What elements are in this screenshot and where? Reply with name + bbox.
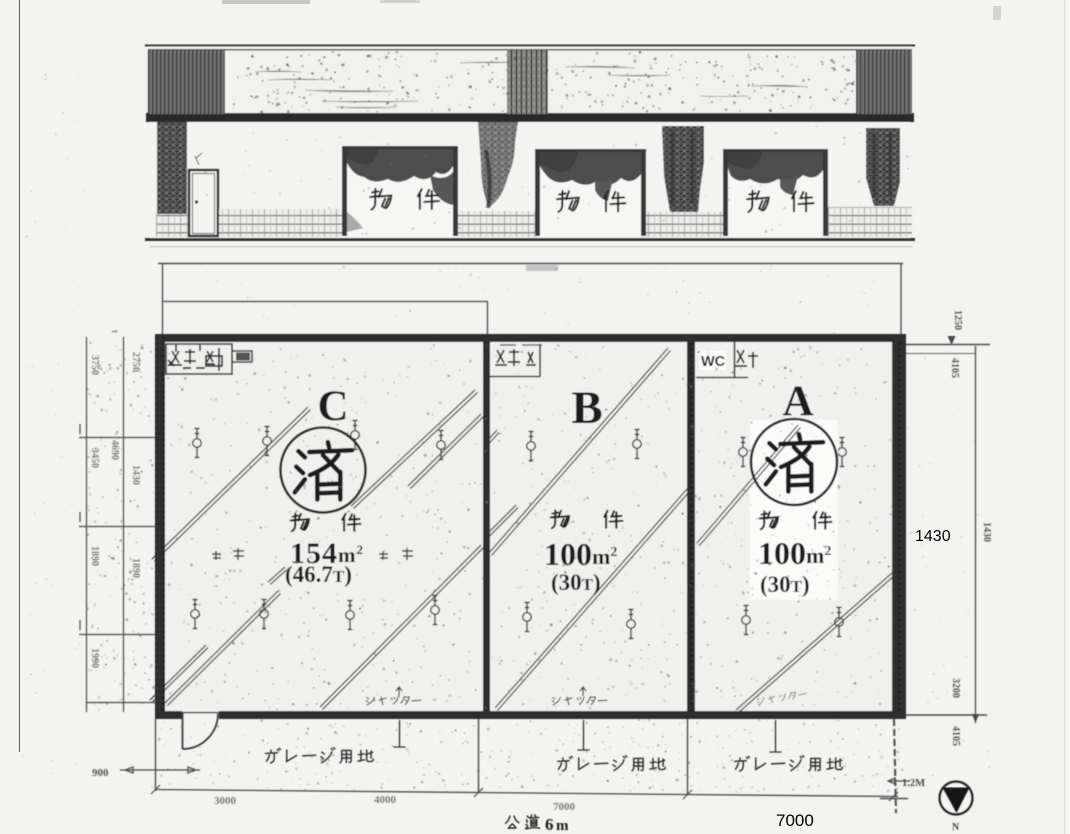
svg-text:4105: 4105 — [949, 358, 960, 378]
svg-text:1.2M: 1.2M — [902, 778, 925, 789]
svg-text:WC: WC — [701, 354, 726, 370]
svg-text:4000: 4000 — [374, 794, 397, 806]
svg-text:1890: 1890 — [89, 546, 100, 566]
svg-text:2750: 2750 — [130, 352, 141, 372]
svg-text:4690: 4690 — [109, 440, 120, 460]
svg-text:1430: 1430 — [915, 528, 951, 545]
svg-text:7000: 7000 — [553, 801, 576, 813]
svg-text:1430: 1430 — [981, 522, 992, 542]
svg-text:900: 900 — [92, 767, 109, 779]
svg-text:1250: 1250 — [952, 310, 963, 330]
svg-text:1430: 1430 — [130, 465, 141, 485]
svg-text:3750: 3750 — [89, 355, 100, 375]
svg-text:3450: 3450 — [89, 448, 100, 468]
svg-text:m: m — [556, 818, 569, 834]
svg-text:1990: 1990 — [89, 648, 100, 668]
svg-text:C: C — [317, 383, 348, 430]
svg-text:3000: 3000 — [214, 795, 237, 807]
svg-text:(30T): (30T) — [760, 572, 810, 597]
svg-text:1890: 1890 — [130, 558, 141, 578]
svg-text:N: N — [952, 822, 960, 833]
svg-text:6: 6 — [545, 815, 554, 834]
svg-text:4105: 4105 — [950, 726, 961, 746]
svg-text:B: B — [571, 382, 602, 434]
svg-text:3200: 3200 — [950, 678, 961, 698]
svg-text:7000: 7000 — [776, 811, 814, 830]
svg-text:t: t — [110, 330, 120, 333]
svg-text:(30T): (30T) — [551, 570, 601, 595]
